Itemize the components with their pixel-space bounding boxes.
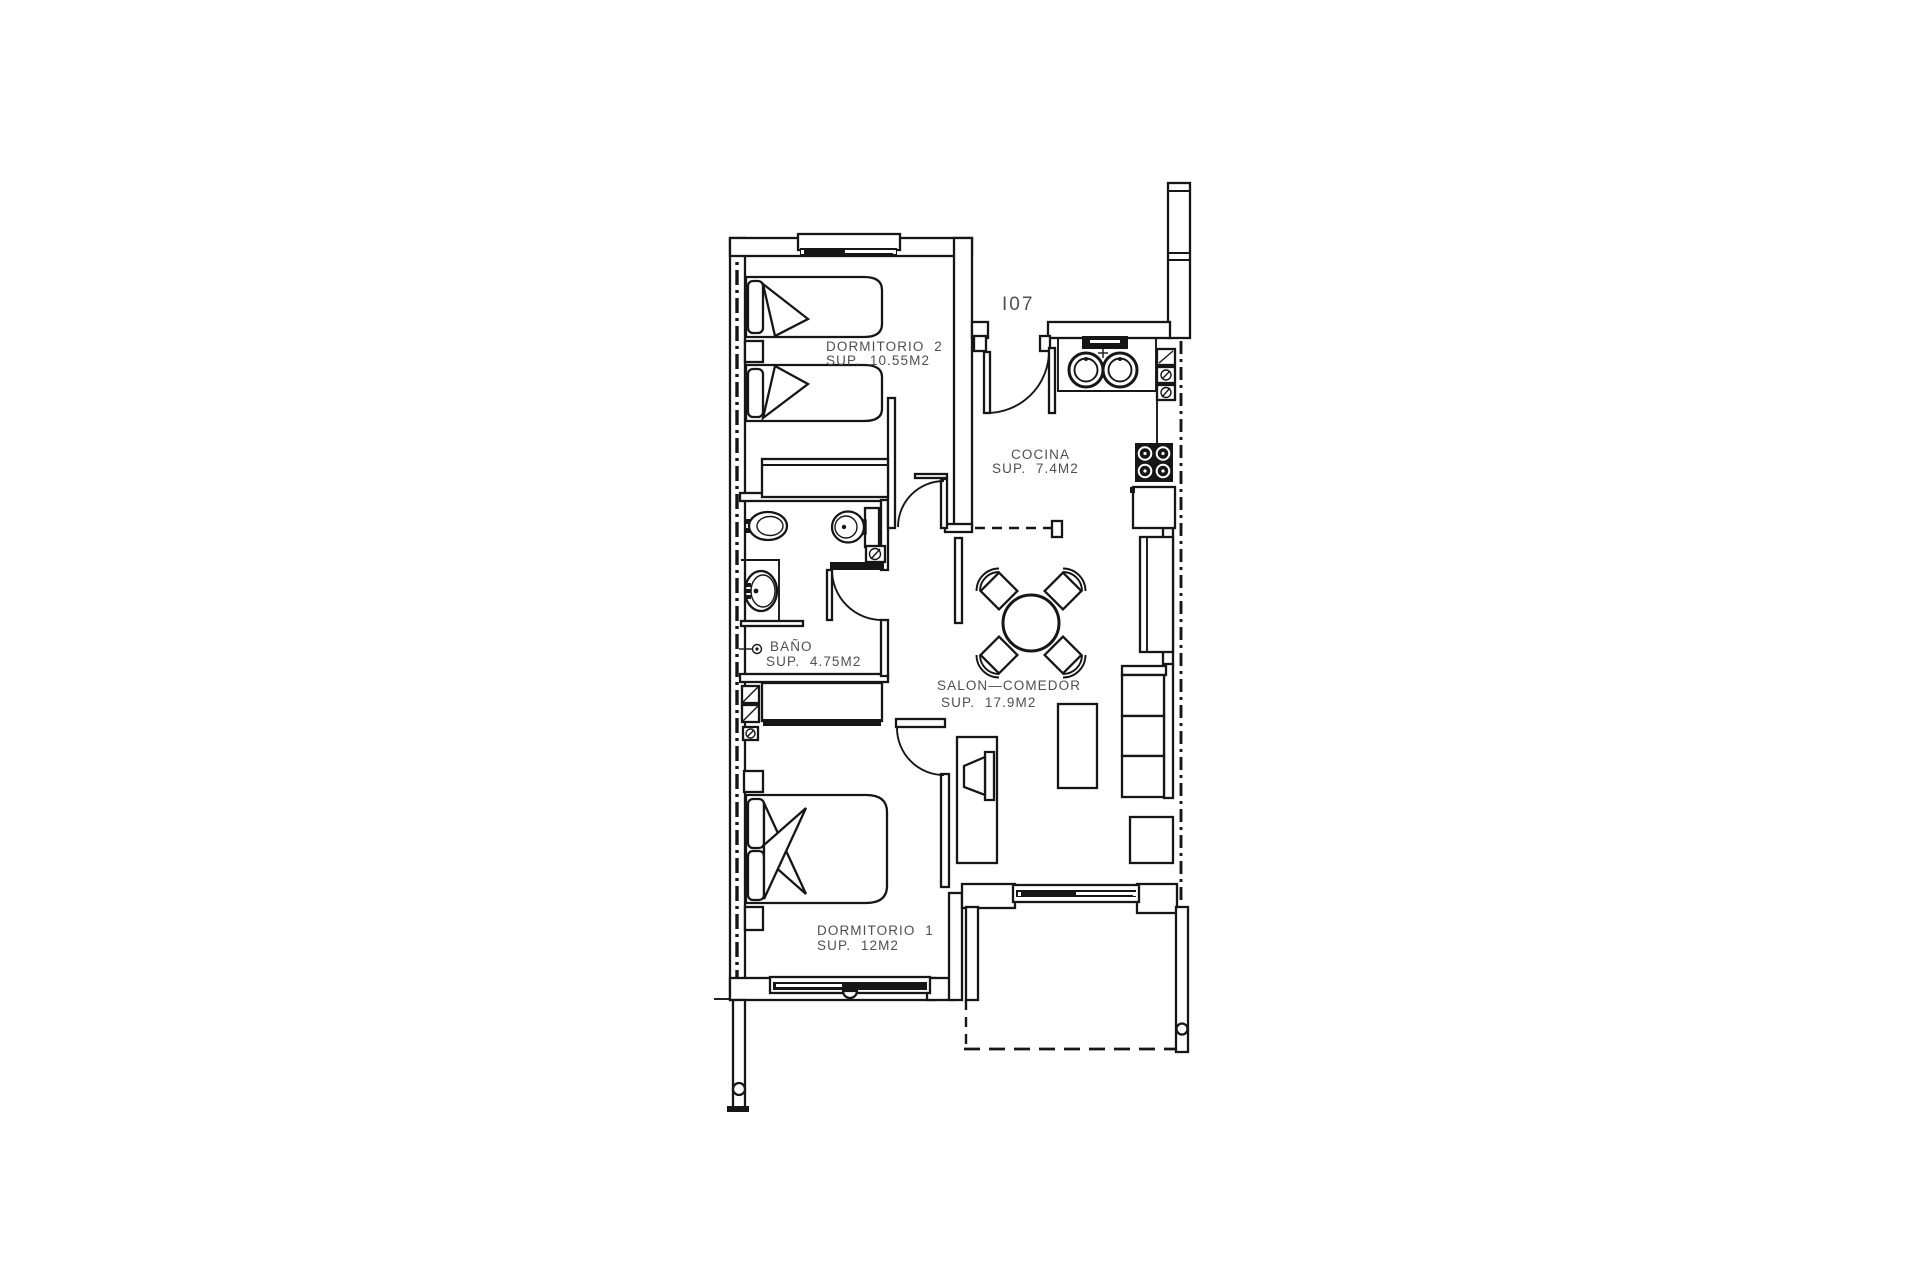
porch-post bbox=[714, 999, 749, 1112]
terrace-west-wall bbox=[966, 907, 978, 1000]
salon-west-partition bbox=[955, 538, 962, 623]
toilet bbox=[832, 508, 879, 547]
dresser bbox=[762, 459, 888, 497]
bed-pillow bbox=[748, 799, 764, 848]
boundary-end-block bbox=[1052, 521, 1062, 537]
dormitorio2-furniture bbox=[745, 277, 888, 497]
kitchen-top-wall-east bbox=[1048, 322, 1170, 338]
double-bed bbox=[746, 795, 887, 903]
sofa-cushion bbox=[1122, 756, 1164, 797]
dorm1-east-wall bbox=[941, 774, 949, 887]
salon-bottom-wall-west bbox=[962, 884, 1015, 908]
dormitorio2-name: DORMITORIO 2 bbox=[826, 339, 943, 354]
sofa-backrest bbox=[1164, 664, 1173, 798]
sideboard bbox=[1140, 537, 1173, 652]
kitchen-sink-counter bbox=[1058, 336, 1156, 391]
entry-return-wall bbox=[1049, 348, 1055, 413]
dorm2-east-kitchen-west-wall bbox=[954, 238, 972, 528]
floor-plan-canvas: I07 DORMITORIO 2 SUP. 10.55M2 COCINA SUP… bbox=[0, 0, 1920, 1280]
unit-number-label: I07 bbox=[1002, 294, 1034, 315]
salon-area: SUP. 17.9M2 bbox=[941, 695, 1037, 710]
downpipe bbox=[733, 1083, 745, 1095]
armchair bbox=[1130, 817, 1173, 863]
sofa bbox=[1122, 664, 1173, 798]
bath-east-wall-lower bbox=[881, 620, 888, 676]
top-right-pillar bbox=[1168, 183, 1190, 338]
window-mullion-knob bbox=[843, 991, 857, 998]
sofa-cushion bbox=[1122, 675, 1164, 716]
bathroom-door bbox=[827, 562, 884, 620]
kitchen-south-stub bbox=[945, 524, 972, 532]
bed-pillow bbox=[748, 281, 763, 333]
bano-area: SUP. 4.75M2 bbox=[766, 654, 862, 669]
built-in-wardrobe bbox=[762, 683, 882, 726]
salon-bottom-wall-east bbox=[1137, 884, 1177, 913]
sofa-cushion bbox=[1122, 716, 1164, 756]
bed-pillow bbox=[748, 851, 764, 900]
dormitorio1-name: DORMITORIO 1 bbox=[817, 923, 934, 938]
dorm1-door bbox=[896, 719, 945, 775]
bath-bottom-wall bbox=[740, 674, 888, 682]
nightstand bbox=[745, 907, 763, 930]
bathroom-fixtures bbox=[739, 508, 885, 654]
dining-table bbox=[1003, 595, 1059, 651]
water-heater bbox=[866, 546, 885, 562]
cocina-name: COCINA bbox=[1011, 447, 1070, 462]
terrace bbox=[964, 907, 1188, 1052]
coffee-table bbox=[1058, 704, 1097, 788]
salon-terrace-sliding-door bbox=[1013, 885, 1139, 902]
bano-name: BAÑO bbox=[770, 639, 813, 654]
single-bed-2 bbox=[746, 365, 882, 421]
kitchen-hob bbox=[1135, 443, 1173, 482]
salon-name: SALON—COMEDOR bbox=[937, 678, 1081, 693]
tv-cabinet bbox=[957, 737, 997, 863]
dormitorio2-area: SUP. 10.55M2 bbox=[826, 353, 930, 368]
sofa-armrest bbox=[1122, 666, 1166, 675]
hall-door bbox=[898, 479, 947, 528]
dormitorio1-area: SUP. 12M2 bbox=[817, 938, 899, 953]
nightstand bbox=[744, 771, 763, 792]
dorm2-window bbox=[798, 234, 900, 256]
hall-shelf-line bbox=[915, 474, 947, 478]
single-bed-1 bbox=[746, 277, 882, 337]
salon-terrace-west-wall bbox=[949, 893, 962, 1000]
vanity-sink bbox=[741, 560, 803, 626]
nightstand bbox=[745, 341, 763, 362]
downpipe bbox=[1177, 1024, 1188, 1035]
bidet bbox=[745, 512, 787, 540]
kitchen-low-cabinet bbox=[1130, 487, 1175, 528]
cocina-area: SUP. 7.4M2 bbox=[992, 461, 1079, 476]
dormitorio1-furniture bbox=[742, 683, 887, 930]
bed-pillow bbox=[748, 369, 763, 417]
wall-shaft-symbols bbox=[742, 686, 759, 740]
entry-door bbox=[984, 351, 1049, 413]
kitchen-fixtures bbox=[1058, 336, 1175, 528]
floor-plan-page: I07 DORMITORIO 2 SUP. 10.55M2 COCINA SUP… bbox=[0, 0, 1920, 1280]
kitchen-side-units bbox=[1157, 349, 1175, 443]
entry-door-jamb-left bbox=[974, 336, 986, 351]
tv-screen bbox=[985, 752, 994, 800]
